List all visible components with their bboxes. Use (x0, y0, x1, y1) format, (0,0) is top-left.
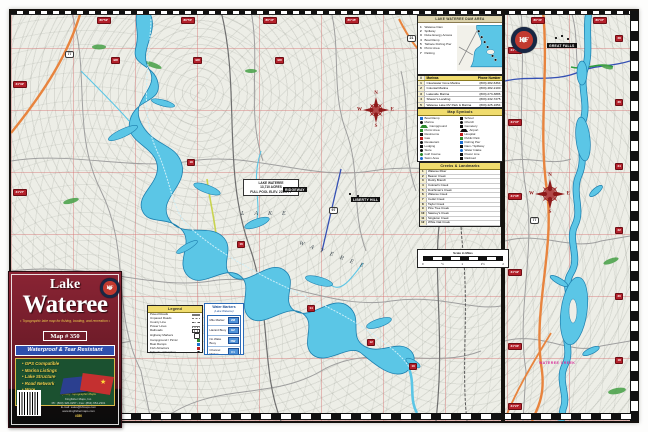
highway-shield: 97 (329, 207, 338, 214)
logo-monogram: KF (519, 36, 529, 44)
inset-title: LAKE WATEREE DAM AREA (418, 16, 502, 23)
legend-symbol-icon (197, 343, 200, 346)
legend-row: Schools / Churches (148, 351, 202, 353)
cover-item-number: #350 (42, 414, 115, 418)
compass-star-icon (535, 179, 565, 209)
marinas-col-num: # (418, 76, 425, 80)
water-markers-box: Water Markers (Lake Wateree) Mile Marker… (204, 303, 244, 355)
compass-e: E (567, 192, 570, 197)
compass-w: W (357, 108, 362, 113)
symbol-icon (420, 137, 423, 140)
cover-inner-frame: KF Lake Wateree • Topographic lake map f… (11, 274, 119, 425)
scale-tick: 1½ (481, 262, 485, 266)
water-marker-swatch: HZ (228, 327, 239, 334)
legend-symbol-icon (192, 318, 200, 319)
symbol-icon (420, 133, 423, 136)
map-product-photo: 80°52' 80°50' 80°47' 80°45' 80°42' 34°32… (0, 0, 648, 432)
symbol-icon (460, 117, 463, 120)
symbol-icon (460, 145, 463, 148)
symbol-icon (420, 157, 423, 160)
compass-s: S (375, 124, 378, 129)
scale-tick: ½ (441, 262, 443, 266)
water-marker-row: Hazard Buoy HZ (208, 326, 240, 336)
symbol-icon (420, 117, 423, 120)
compass-n: N (374, 91, 378, 96)
symbol-icon (460, 125, 463, 128)
compass-s: S (549, 210, 552, 215)
legend-symbol-icon (197, 339, 200, 342)
cover-title-block: KF Lake Wateree • Topographic lake map f… (8, 271, 122, 428)
cover-contact-line: www.kingfishermaps.com (42, 409, 115, 413)
water-marker-row: Mile Marker 2M (208, 316, 240, 326)
creeks-title: Creeks & Landmarks (420, 163, 500, 170)
scale-tick: 2 (502, 262, 504, 266)
compass-n: N (548, 173, 552, 178)
symbol-icon (460, 137, 463, 140)
creeks-table: Creeks & Landmarks 1 Wateree River 2 Bea… (419, 162, 501, 227)
compass-w: W (529, 192, 534, 197)
water-marker-swatch: C1 (228, 348, 239, 355)
highway-shield: 77 (65, 51, 74, 58)
cover-map-graphic: ★ (62, 371, 120, 401)
symbol-icon (420, 129, 423, 132)
cover-feature-item: • GPS Compatible (22, 361, 114, 368)
symbol-icon (460, 133, 463, 136)
inset-map-graphic (457, 23, 502, 73)
logo-monogram: KF (107, 286, 114, 291)
compass-star-icon (363, 97, 389, 123)
water-marker-swatch: NW (228, 337, 239, 344)
scale-tick: 1 (461, 262, 463, 266)
symbol-icon (460, 153, 463, 156)
legend-symbol-icon (192, 326, 200, 328)
legend-symbol-icon (192, 314, 200, 315)
creek-row: 13 June Branch (420, 226, 500, 227)
map-symbols-title: Map Symbols (418, 109, 502, 116)
cover-banner: Waterproof & Tear Resistant (15, 345, 115, 356)
legend-symbol-icon (192, 322, 200, 323)
compass-e: E (391, 108, 394, 113)
inset-key-list: 1Wateree Dam 2Spillway 3Duke Energy Acce… (418, 23, 457, 73)
water-marker-row: No Wake Buoy NW (208, 336, 240, 347)
water-markers-subtitle: (Lake Wateree) (205, 309, 243, 313)
cover-lake-name: Wateree (12, 292, 118, 317)
water-marker-row: Channel Marker C1 (208, 347, 240, 356)
legend-box: Legend Paved Roads Unpaved Roads County … (147, 305, 203, 353)
symbol-item: Railroad (460, 157, 500, 161)
symbol-icon (420, 145, 423, 148)
dam-area-inset: LAKE WATEREE DAM AREA 1Wateree Dam 2Spil… (417, 15, 503, 75)
symbol-icon (460, 141, 463, 144)
kingfisher-logo-icon: KF (511, 27, 537, 53)
map-symbols-box: Map Symbols Boat Ramp Marina (417, 108, 503, 162)
cover-tagline: • Topographic lake map for fishing, boat… (12, 319, 118, 323)
symbol-item: Swim Area (420, 157, 460, 161)
star-icon: ★ (100, 379, 106, 386)
legend-symbol-icon (197, 351, 200, 353)
symbol-icon (460, 157, 463, 160)
kingfisher-logo-icon: KF (100, 278, 120, 298)
barcode (17, 390, 41, 416)
marinas-table: # Marinas Phone Number 1 Clearwater Cove… (417, 75, 503, 108)
highway-shield: 21 (407, 35, 416, 42)
cover-map-number: Map # 350 (43, 331, 86, 341)
compass-rose-right: N E S W (535, 179, 565, 209)
compass-rose-main: N E S W (363, 97, 389, 123)
scale-bar-box: Scale in Miles 0½11½2 (417, 249, 509, 268)
legend-symbol-icon (194, 333, 200, 339)
scale-label: Scale in Miles (421, 251, 505, 255)
scale-tick: 0 (422, 262, 424, 266)
marinas-col-name: Marinas (425, 76, 478, 80)
water-marker-swatch: 2M (228, 317, 239, 324)
scale-bar (423, 256, 503, 261)
highway-shield: 77 (530, 217, 539, 224)
legend-symbol-icon (197, 347, 200, 350)
marinas-col-phone: Phone Number (478, 76, 503, 80)
inset-key-item: 7Parking (420, 51, 456, 55)
